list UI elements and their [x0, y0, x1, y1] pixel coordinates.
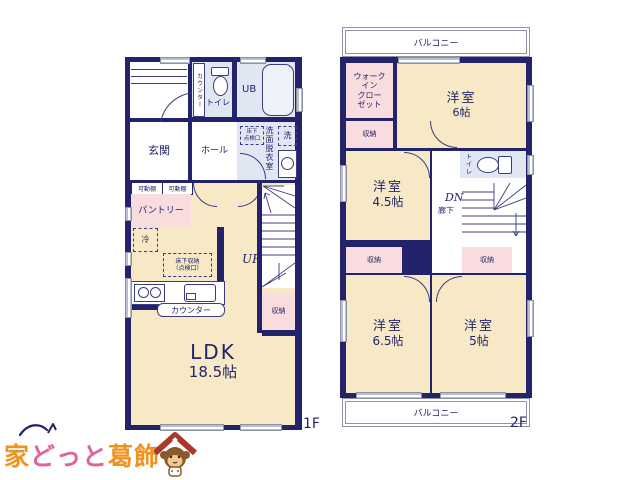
wic-label: ウォーク イン クロー ゼット [354, 72, 386, 109]
balcony-top: バルコニー [342, 27, 530, 57]
stairs-1f-treads [262, 185, 295, 288]
stove-burner-2-icon [150, 287, 161, 298]
ldk-label-group: LDK 18.5帖 [160, 336, 266, 386]
sink-faucet-icon [186, 293, 196, 300]
laundry-space: 洗 [278, 126, 297, 146]
storage-1f-label: 収納 [272, 307, 286, 315]
floor2-label: 2F [510, 415, 527, 431]
bedroom-65-size: 6.5帖 [372, 335, 403, 349]
porch-steps [131, 63, 187, 85]
hall-label: ホール [201, 146, 228, 156]
left-vent-window-1 [125, 207, 132, 221]
floor1-label: 1F [303, 416, 320, 432]
ldk-bottom-window-1 [160, 424, 224, 431]
washer-drum-icon [281, 157, 294, 170]
room-bedroom-6: 洋室 6帖 [397, 63, 526, 148]
logo-text-ie: 家 [4, 442, 30, 471]
room-pantry: パントリー [131, 194, 191, 228]
toilet-2f-tank-icon [498, 156, 512, 174]
fridge-space: 冷 [133, 228, 158, 252]
up-label: UP [242, 252, 260, 266]
bedroom-5-window [527, 300, 534, 337]
toilet-1f-label: トイレ [204, 97, 232, 108]
bathtub-icon [262, 64, 294, 116]
logo-text-dotto: どっと [30, 442, 108, 471]
bedroom-65-balcony-door [356, 392, 422, 399]
bedroom-65-name: 洋室 [373, 320, 403, 335]
toilet-tank-icon [211, 67, 229, 76]
storage-1f: 収納 [262, 293, 295, 330]
bedroom-5-size: 5帖 [469, 335, 489, 349]
balcony-top-inner: バルコニー [345, 30, 527, 54]
toilet-counter-label: カウンター [195, 73, 204, 108]
ldk-bottom-window-2 [240, 424, 282, 431]
logo-mascot-icon [152, 432, 198, 478]
bedroom-5-name: 洋室 [464, 320, 494, 335]
storage-2f-left-label: 収納 [367, 256, 381, 264]
storage-2f-right: 収納 [462, 247, 512, 273]
room-hall: ホール [192, 122, 237, 180]
bedroom-6-side-window [527, 85, 534, 122]
room-genkan: 玄関 [130, 122, 188, 180]
wic-storage-label: 収納 [363, 130, 377, 138]
left-vent-window-2 [125, 252, 132, 266]
toilet-2f-label: トイレ [463, 153, 473, 177]
toilet-2f-window [527, 155, 534, 175]
toilet-bowl-icon [213, 76, 228, 96]
bedroom-45-window [340, 165, 347, 202]
toilet-counter-shelf: カウンター [193, 63, 205, 117]
ldk-size: 18.5帖 [189, 364, 237, 381]
toilet-2f-bowl-icon [477, 157, 499, 173]
pantry-label: パントリー [138, 206, 183, 216]
washroom-label: 洗面脱衣室 [264, 126, 275, 178]
storage-1f-wall [262, 330, 295, 336]
counter-label: カウンター [171, 305, 211, 316]
entry-door-window [160, 57, 190, 64]
dn-label: DN [445, 191, 463, 204]
balcony-top-label: バルコニー [414, 36, 459, 49]
kitchen-wall [217, 227, 224, 283]
stairs-2f-treads [462, 183, 526, 243]
ldk-left-window [125, 278, 132, 318]
bedroom-45-size: 4.5帖 [372, 196, 403, 210]
bedroom-6-name: 洋室 [446, 92, 476, 107]
genkan-label: 玄関 [148, 145, 170, 158]
bedroom-6-size: 6帖 [453, 107, 471, 120]
ub-side-window [296, 88, 303, 112]
bedroom-5-balcony-door [440, 392, 506, 399]
bedroom-65-window [340, 300, 347, 342]
underfloor-hatch: 床下 点検口 [240, 126, 264, 145]
balcony-bottom-label: バルコニー [414, 406, 459, 419]
stove-burner-1-icon [138, 287, 149, 298]
logo-text: 家どっと葛飾 [4, 437, 160, 473]
corridor-label: 廊下 [438, 205, 454, 216]
floorplan-canvas: カウンター トイレ UB 玄関 ホール 床下 点検口 洗面脱衣室 洗 可動棚 可… [0, 0, 640, 480]
room-wic: ウォーク イン クロー ゼット [346, 63, 393, 118]
balcony-bottom: バルコニー [342, 398, 530, 427]
balcony-bottom-inner: バルコニー [345, 401, 527, 424]
bedroom-6-balcony-door [398, 57, 460, 64]
storage-2f-right-label: 収納 [480, 256, 494, 264]
underfloor-storage: 床下収納 （点検口） [163, 253, 212, 277]
storage-2f-left: 収納 [346, 247, 402, 273]
wic-storage: 収納 [346, 121, 393, 148]
ldk-name: LDK [190, 341, 236, 364]
counter-label-box: カウンター [157, 303, 225, 317]
ub-top-window [240, 57, 266, 64]
bedroom-45-name: 洋室 [373, 181, 403, 196]
ub-label: UB [242, 84, 256, 95]
